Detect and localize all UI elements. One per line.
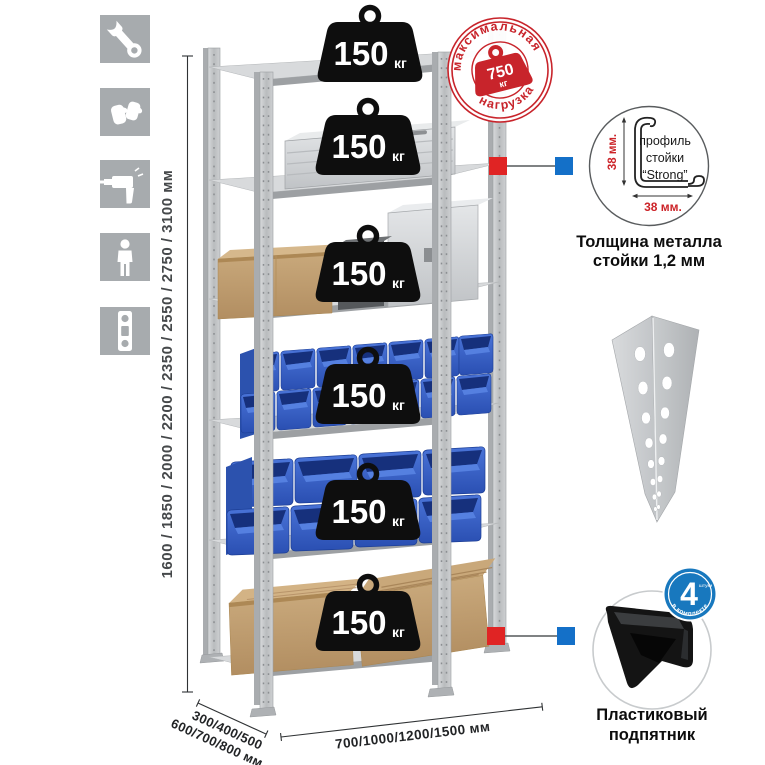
foot-caption-line1: Пластиковый xyxy=(596,706,707,724)
profile-callout-connector xyxy=(489,157,573,175)
connector-blue-square xyxy=(555,157,573,175)
wrench-icon xyxy=(100,15,150,63)
badge-count-value: 4 xyxy=(680,576,698,612)
profile-detail-circle: 38 мм. 38 мм. профиль стойки “Strong” xyxy=(590,107,709,226)
corner-post-image xyxy=(612,316,699,522)
height-dimension-label: 1600 / 1850 / 2000 / 2200 / 2350 / 2550 … xyxy=(159,170,176,579)
connector-red-square xyxy=(487,627,505,645)
load-value: 150 xyxy=(331,604,386,641)
load-value: 150 xyxy=(333,35,388,72)
load-unit: кг xyxy=(392,624,405,640)
load-unit: кг xyxy=(392,397,405,413)
width-dimension: 700/1000/1200/1500 мм xyxy=(281,703,545,758)
profile-caption-line1: Толщина металла xyxy=(576,233,722,251)
connector-blue-square xyxy=(557,627,575,645)
level-icon xyxy=(100,307,150,355)
badge-count-small-label: штуки xyxy=(699,584,713,589)
load-value: 150 xyxy=(331,255,386,292)
profile-caption-line2: стойки 1,2 мм xyxy=(593,252,705,270)
feature-icons-sidebar xyxy=(100,15,150,355)
load-badge-2: 150 кг xyxy=(316,101,421,176)
load-unit: кг xyxy=(392,148,405,164)
profile-label-line3: “Strong” xyxy=(642,168,687,182)
profile-label-line2: стойки xyxy=(646,151,684,165)
max-load-stamp: максимальная нагрузка 750 кг xyxy=(437,7,563,133)
connector-red-square xyxy=(489,157,507,175)
load-value: 150 xyxy=(331,493,386,530)
rack-post-back-left xyxy=(200,48,224,663)
drill-icon xyxy=(100,160,150,208)
load-unit: кг xyxy=(392,513,405,529)
foot-callout-connector xyxy=(487,627,575,645)
load-badge-1: 150 кг xyxy=(318,8,423,83)
shelf-load-badges: 150 кг 150 кг 150 кг 150 кг 150 кг 150 к… xyxy=(316,8,423,652)
profile-dim-v-label: 38 мм. xyxy=(607,134,619,170)
profile-dim-h-label: 38 мм. xyxy=(644,200,682,214)
person-icon xyxy=(100,233,150,281)
product-infographic: 1600 / 1850 / 2000 / 2200 / 2350 / 2550 … xyxy=(0,0,765,765)
load-unit: кг xyxy=(394,55,407,71)
load-unit: кг xyxy=(392,275,405,291)
load-value: 150 xyxy=(331,128,386,165)
gloves-icon xyxy=(100,88,150,136)
height-dimension: 1600 / 1850 / 2000 / 2200 / 2350 / 2550 … xyxy=(159,56,193,692)
width-label: 700/1000/1200/1500 мм xyxy=(334,719,491,752)
profile-label-line1: профиль xyxy=(639,134,691,148)
foot-caption-line2: подпятник xyxy=(609,726,696,744)
infographic-svg: 1600 / 1850 / 2000 / 2200 / 2350 / 2550 … xyxy=(0,0,765,765)
included-count-badge: 4 штуки в комплекте xyxy=(663,567,718,622)
load-value: 150 xyxy=(331,377,386,414)
